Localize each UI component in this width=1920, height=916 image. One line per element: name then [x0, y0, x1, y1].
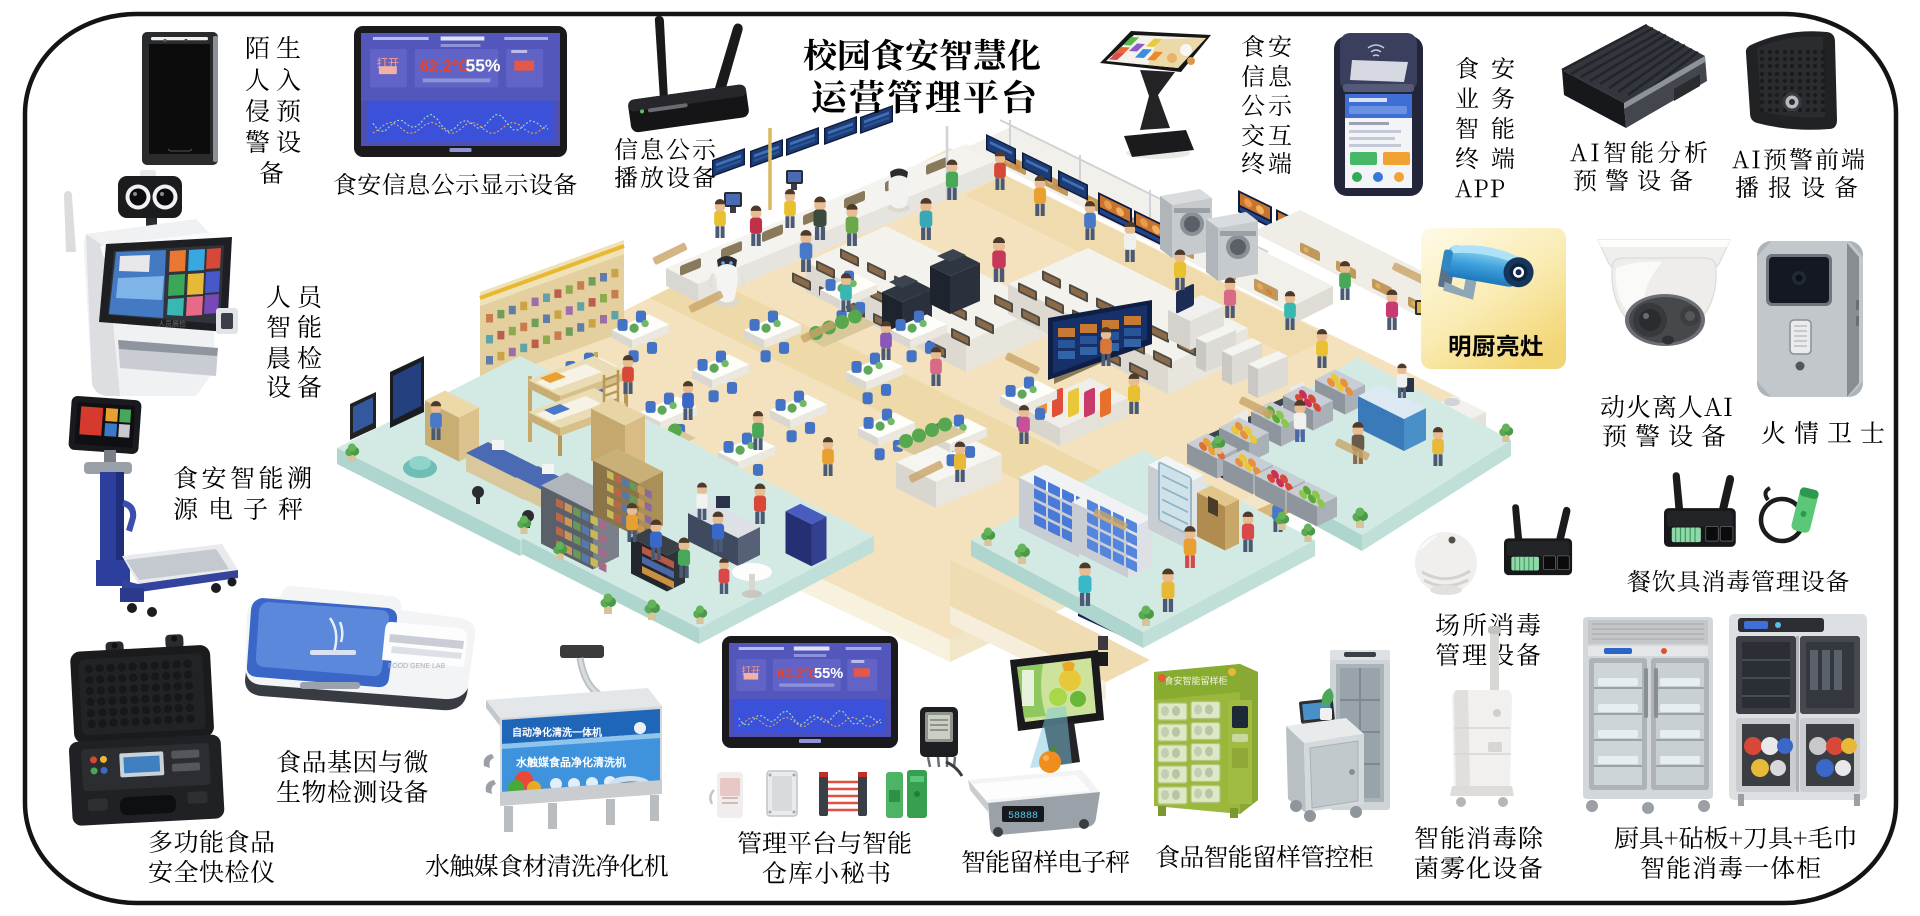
- svg-text:55%: 55%: [814, 666, 843, 682]
- svg-text:人员晨检: 人员晨检: [158, 319, 186, 328]
- svg-text:食安智能留样柜: 食安智能留样柜: [1164, 675, 1227, 686]
- svg-text:62.2°C: 62.2°C: [777, 666, 819, 681]
- svg-text:FOOD GENE LAB: FOOD GENE LAB: [388, 663, 446, 670]
- svg-text:水触媒食品净化清洗机: 水触媒食品净化清洗机: [516, 755, 626, 769]
- svg-text:62.2°C: 62.2°C: [420, 58, 470, 76]
- svg-text:58888: 58888: [1008, 811, 1038, 822]
- svg-text:55%: 55%: [465, 56, 500, 76]
- svg-text:自动净化清洗一体机: 自动净化清洗一体机: [512, 726, 602, 739]
